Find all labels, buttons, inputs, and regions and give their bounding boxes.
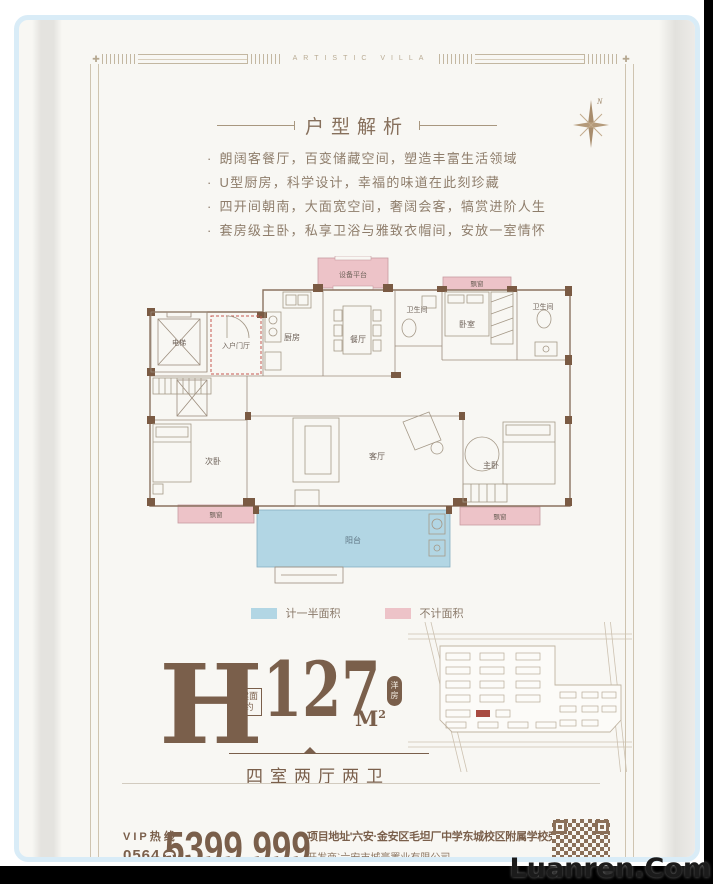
watermark: Luanren.Com [510, 853, 711, 884]
room-label-living-room: 客厅 [369, 451, 385, 461]
room-label-bathroom-1: 卫生间 [407, 305, 428, 314]
title-line-left [217, 125, 295, 126]
frame-corner-cross-icon: ✚ [620, 54, 632, 64]
bullet-text: 朗阔客餐厅，百变储藏空间，塑造丰富生活领域 [220, 147, 518, 171]
room-label-bay-window-right: 飘窗 [494, 512, 507, 521]
qr-finder-icon [553, 820, 567, 834]
frame-hatch [439, 54, 475, 64]
area-unit: M2 [355, 706, 386, 731]
bullet-item: · U型厨房，科学设计，幸福的味道在此刻珍藏 [207, 171, 546, 195]
siteplan-highlight-building [476, 710, 490, 717]
frame-title: ARTISTIC VILLA [283, 54, 440, 64]
floorplan-drawing: 设备平台 飘窗 电梯 入户门厅 厨房 餐厅 卫生间 卧室 卫生间 次卧 客厅 主… [145, 256, 575, 598]
room-label-bay-window-left: 飘窗 [210, 510, 223, 519]
frame-corner-cross-icon: ✚ [90, 54, 102, 64]
area-approx-box: 建面约 [236, 688, 262, 716]
unit-rule-line [229, 753, 429, 754]
legend-label: 不计面积 [420, 605, 464, 621]
bullet-item: · 朗阔客餐厅，百变储藏空间，塑造丰富生活领域 [207, 147, 546, 171]
legend-item-not-counted: 不计面积 [385, 605, 464, 621]
hotline-number: 5399 999 [165, 821, 311, 862]
feature-bullets: · 朗阔客餐厅，百变储藏空间，塑造丰富生活领域 · U型厨房，科学设计，幸福的味… [207, 147, 546, 243]
bullet-marker: · [207, 147, 213, 171]
photo-shadow-right [659, 20, 695, 857]
vip-area-code: 0564 [123, 847, 160, 862]
compass-north-label: N [596, 97, 603, 106]
room-label-bay-window-top: 飘窗 [471, 279, 484, 288]
unit-category-tag: 洋房 [387, 676, 402, 706]
bullet-item: · 套房级主卧，私享卫浴与雅致衣帽间，安放一室情怀 [207, 219, 546, 243]
legend-swatch-pink [385, 608, 411, 619]
poster-card: ✚ ARTISTIC VILLA ✚ N 户型解析 · 朗阔客餐厅，百变储藏空间… [14, 15, 700, 862]
triangle-up-icon [303, 747, 317, 754]
photo-shadow-left [32, 20, 62, 857]
room-label-dining: 餐厅 [350, 335, 366, 344]
siteplan-map [408, 622, 632, 772]
frame-left-line [90, 64, 99, 857]
frame-hatch [584, 54, 620, 64]
legend-item-half-area: 计一半面积 [251, 605, 341, 621]
frame-hatch [102, 54, 138, 64]
footer-divider [122, 783, 600, 784]
frame-lines [475, 54, 584, 64]
frame-top-band: ✚ ARTISTIC VILLA ✚ [90, 54, 632, 64]
bullet-marker: · [207, 219, 213, 243]
project-address: 项目地址'六安·金安区毛坦厂中学东城校区附属学校旁 [307, 828, 567, 844]
section-title-row: 户型解析 [19, 112, 695, 139]
room-label-balcony: 阳台 [345, 535, 361, 545]
area-unit-m: M [355, 706, 378, 731]
area-unit-sup: 2 [378, 708, 386, 721]
room-label-bathroom-2: 卫生间 [533, 302, 554, 311]
legend-label: 计一半面积 [286, 605, 341, 621]
page-title: 户型解析 [305, 112, 409, 139]
room-label-bedroom: 卧室 [459, 319, 475, 329]
frame-lines [138, 54, 247, 64]
bullet-text: U型厨房，科学设计，幸福的味道在此刻珍藏 [220, 171, 500, 195]
room-label-master-bedroom: 主卧 [483, 460, 499, 470]
title-line-right [419, 125, 497, 126]
bullet-marker: · [207, 171, 213, 195]
bullet-text: 套房级主卧，私享卫浴与雅致衣帽间，安放一室情怀 [220, 219, 547, 243]
room-label-kitchen: 厨房 [284, 332, 300, 342]
room-label-entry: 入户门厅 [222, 341, 250, 350]
bullet-item: · 四开间朝南，大面宽空间，奢阔会客，犒赏进阶人生 [207, 195, 546, 219]
room-label-equipment: 设备平台 [339, 270, 367, 279]
room-label-second-bedroom: 次卧 [205, 456, 221, 466]
qr-finder-icon [595, 820, 609, 834]
floorplan-legend: 计一半面积 不计面积 [19, 605, 695, 621]
room-label-elevator: 电梯 [172, 338, 186, 347]
legend-swatch-blue [251, 608, 277, 619]
frame-hatch [247, 54, 283, 64]
bullet-text: 四开间朝南，大面宽空间，奢阔会客，犒赏进阶人生 [220, 195, 547, 219]
bullet-marker: · [207, 195, 213, 219]
